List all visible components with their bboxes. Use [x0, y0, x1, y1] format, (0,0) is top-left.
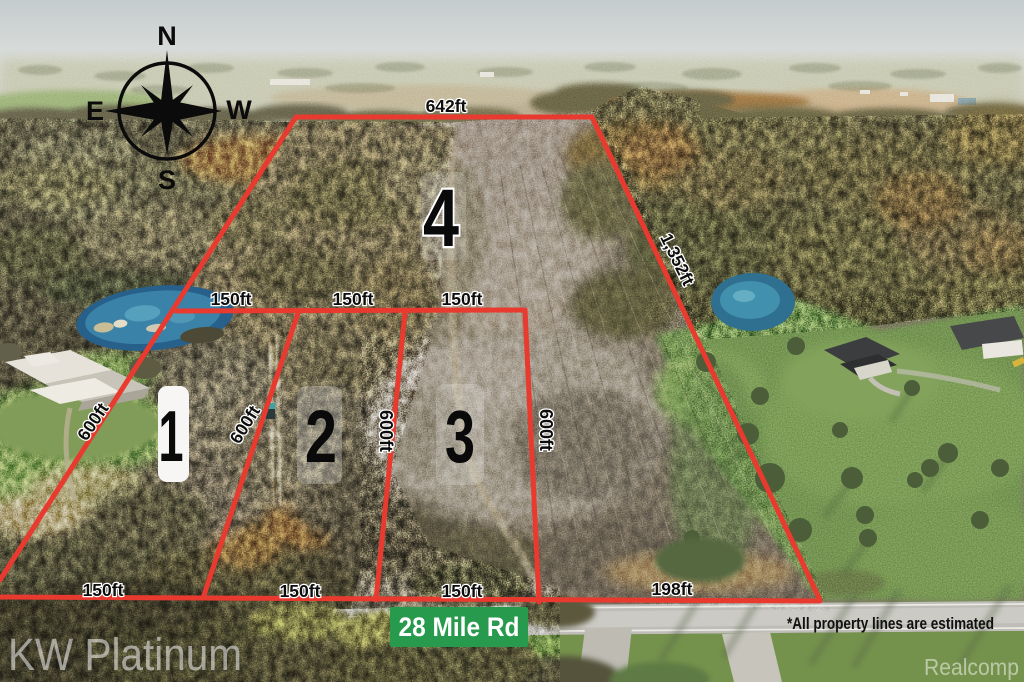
svg-text:2: 2 — [305, 395, 337, 478]
svg-text:W: W — [226, 95, 252, 125]
svg-text:198ft: 198ft — [652, 579, 693, 599]
svg-text:150ft: 150ft — [280, 581, 321, 601]
svg-text:N: N — [157, 21, 177, 51]
svg-text:KW Platinum: KW Platinum — [8, 629, 242, 680]
svg-text:642ft: 642ft — [426, 96, 467, 116]
svg-text:600ft: 600ft — [536, 409, 556, 451]
svg-text:600ft: 600ft — [376, 410, 396, 452]
svg-text:150ft: 150ft — [211, 289, 252, 309]
svg-text:150ft: 150ft — [442, 581, 483, 601]
svg-text:E: E — [86, 96, 104, 126]
svg-text:S: S — [158, 165, 176, 195]
svg-text:1: 1 — [159, 397, 184, 477]
svg-text:*All property lines are estima: *All property lines are estimated — [787, 615, 994, 633]
svg-text:28 Mile Rd: 28 Mile Rd — [399, 612, 520, 642]
svg-text:3: 3 — [445, 395, 475, 478]
svg-text:150ft: 150ft — [333, 289, 374, 309]
svg-text:150ft: 150ft — [442, 289, 483, 309]
svg-text:Realcomp: Realcomp — [924, 654, 1019, 680]
svg-text:4: 4 — [423, 173, 459, 264]
svg-text:150ft: 150ft — [83, 580, 124, 600]
